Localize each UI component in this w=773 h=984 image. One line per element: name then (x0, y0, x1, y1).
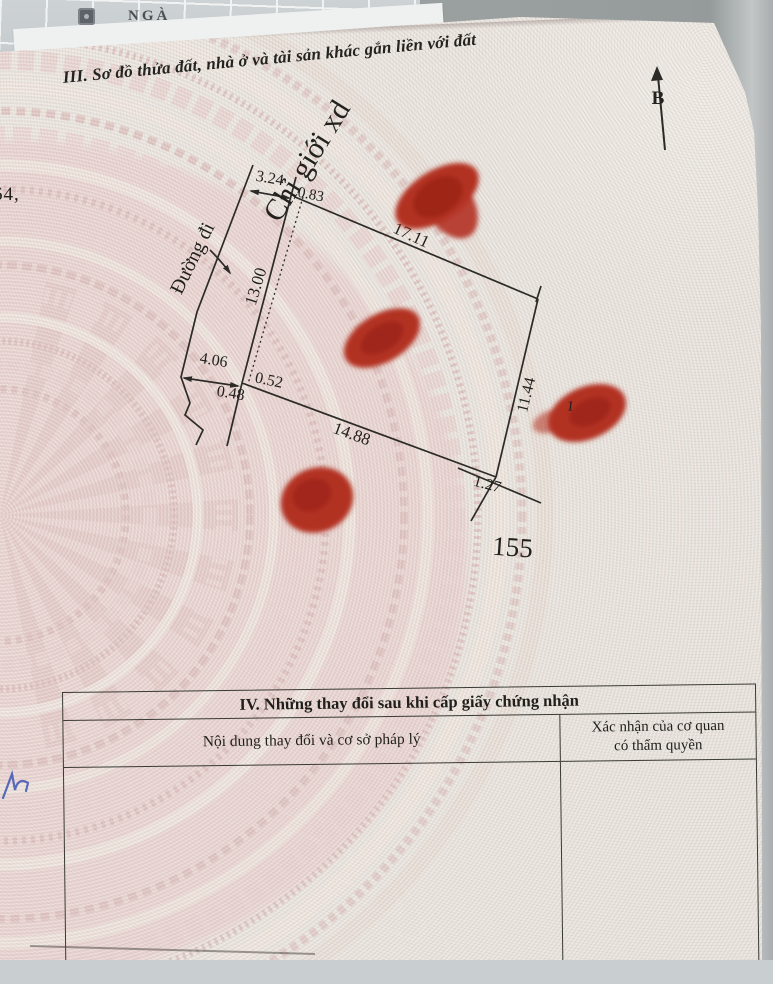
north-label: B (652, 88, 665, 109)
dim-left-edge: 13.00 (241, 265, 270, 307)
dim-corner-edge: 1.27 (471, 473, 502, 497)
certificate-page: III. Sơ đồ thửa đất, nhà ở và tài sản kh… (0, 0, 773, 960)
underlying-paper-emblem-dot (84, 14, 89, 19)
confirmation-line-2: có thẩm quyền (614, 736, 703, 756)
section-iv-table: IV. Những thay đổi sau khi cấp giấy chứn… (62, 684, 760, 984)
dim-road-width-top: 3.24 (255, 168, 286, 190)
parcel-number: 155 (491, 531, 533, 564)
blue-pen-mark (0, 766, 42, 810)
underlying-paper-text: NGÀ (128, 8, 170, 25)
setback-label: Chỉ giới xd (257, 95, 357, 228)
column-header-content: Nội dung thay đổi và cơ sở pháp lý (63, 715, 560, 767)
column-header-confirmation: Xác nhận của cơ quan có thẩm quyền (559, 713, 755, 761)
empty-cell-confirmation (560, 760, 758, 977)
road-label: Đường đi (166, 219, 219, 298)
dim-jog: 0.48 (216, 383, 246, 404)
confirmation-line-1: Xác nhận của cơ quan (592, 717, 725, 737)
photo-of-land-certificate: { "photo": { "background_text": "NGÀ", "… (0, 0, 773, 960)
dim-setback-top: 0.83 (296, 185, 325, 206)
dim-road-width-bottom: 4.06 (199, 350, 229, 371)
dim-bottom-edge: 14.88 (331, 418, 373, 449)
table-header-row: Nội dung thay đổi và cơ sở pháp lý Xác n… (63, 713, 756, 768)
